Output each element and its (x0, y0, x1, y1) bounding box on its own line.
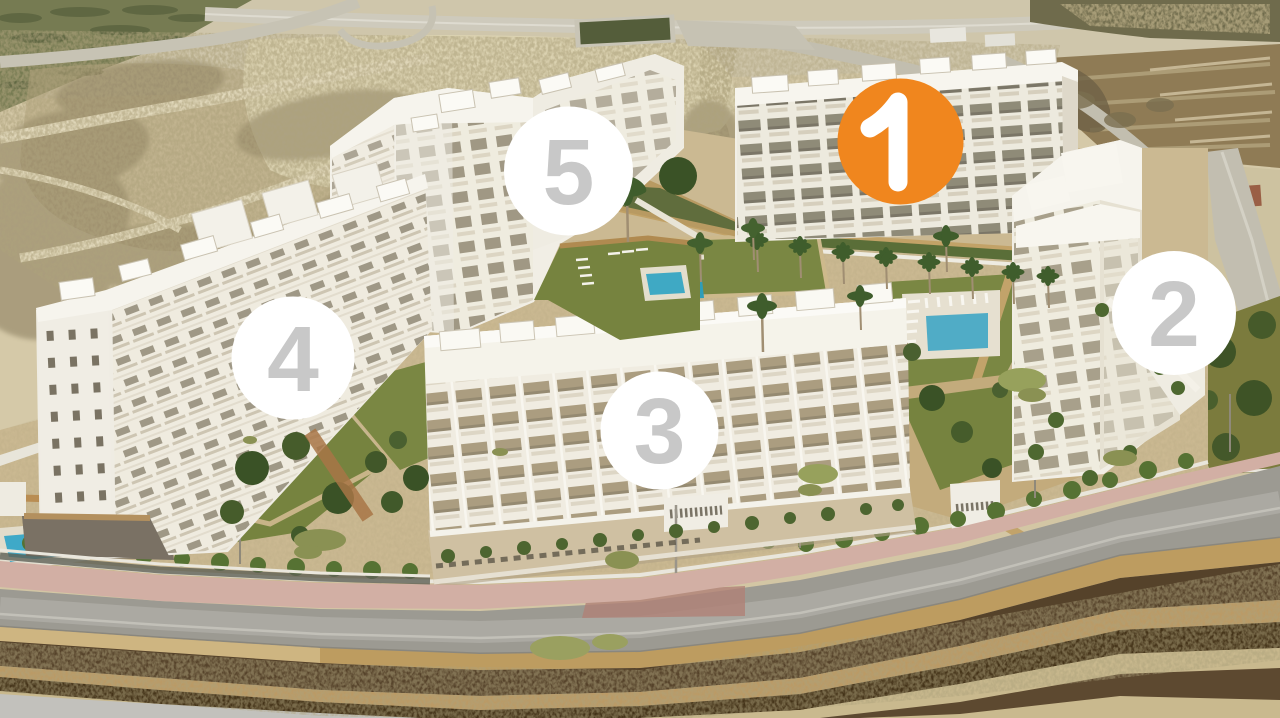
svg-text:5: 5 (543, 120, 595, 224)
svg-text:2: 2 (1148, 262, 1200, 366)
svg-text:3: 3 (634, 379, 686, 483)
svg-text:4: 4 (267, 307, 319, 411)
